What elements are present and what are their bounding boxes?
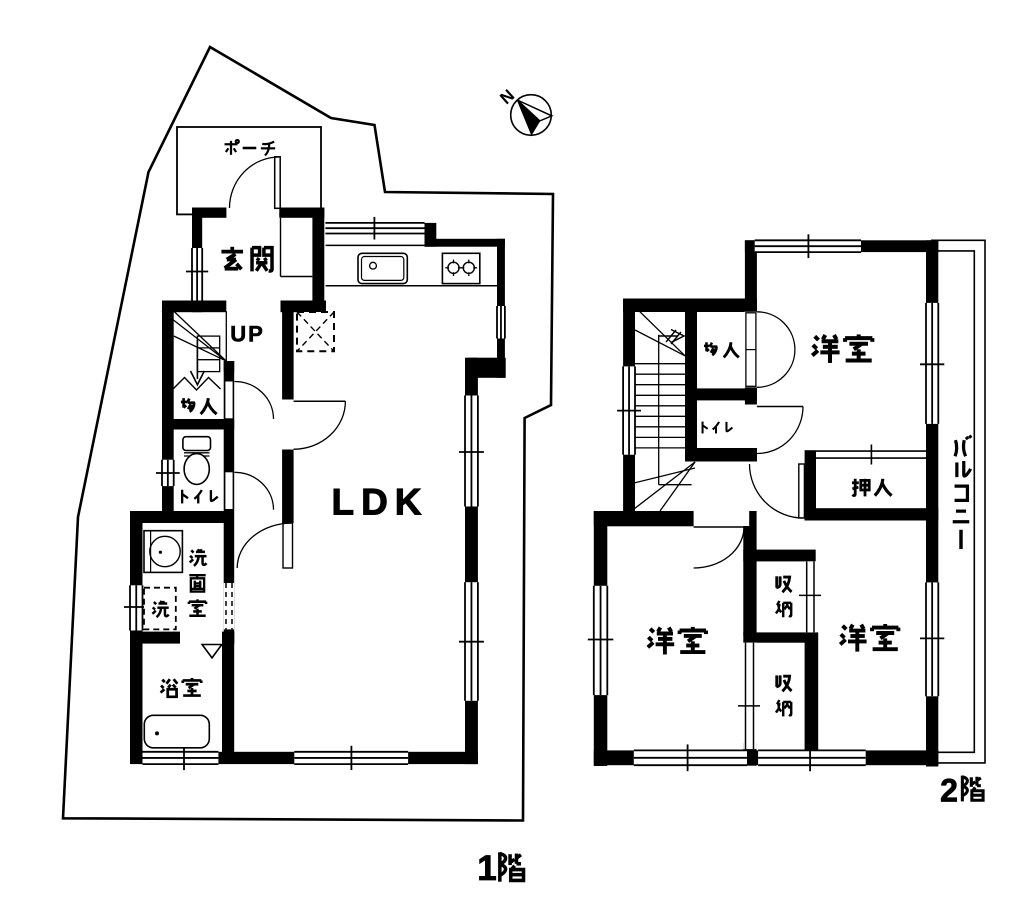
svg-text:UP: UP — [230, 322, 265, 347]
svg-text:1: 1 — [477, 849, 496, 888]
svg-text:N: N — [496, 86, 518, 108]
svg-text:LDK: LDK — [331, 482, 428, 523]
svg-text:2: 2 — [940, 773, 958, 809]
